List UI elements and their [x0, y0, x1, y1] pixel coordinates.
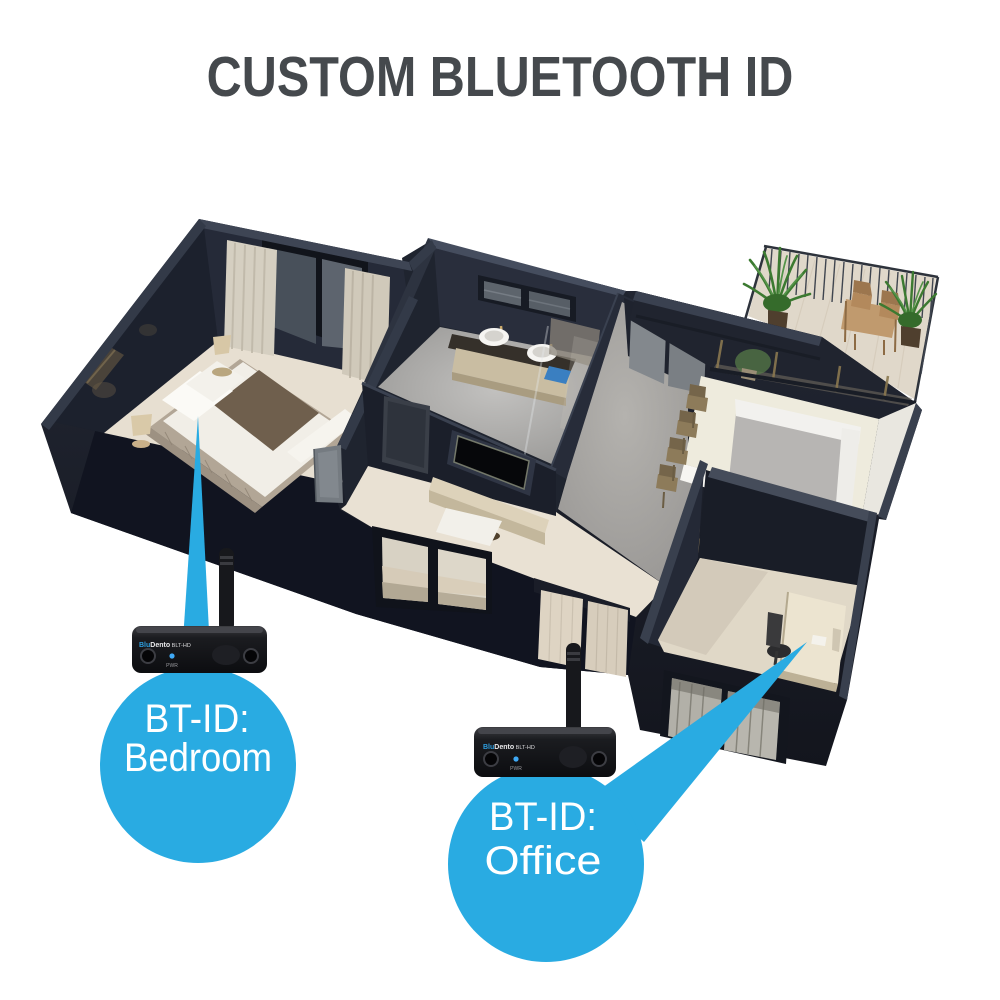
svg-text:Bedroom: Bedroom	[124, 736, 272, 780]
svg-text:BT-ID:: BT-ID:	[145, 697, 250, 741]
svg-text:PWR: PWR	[510, 766, 522, 772]
svg-text:PWR: PWR	[166, 663, 178, 669]
svg-text:BluDento BLT-HD: BluDento BLT-HD	[139, 642, 191, 649]
svg-text:Office: Office	[485, 839, 602, 883]
svg-text:BT-ID:: BT-ID:	[489, 795, 597, 839]
svg-text:BluDento BLT-HD: BluDento BLT-HD	[483, 744, 535, 751]
